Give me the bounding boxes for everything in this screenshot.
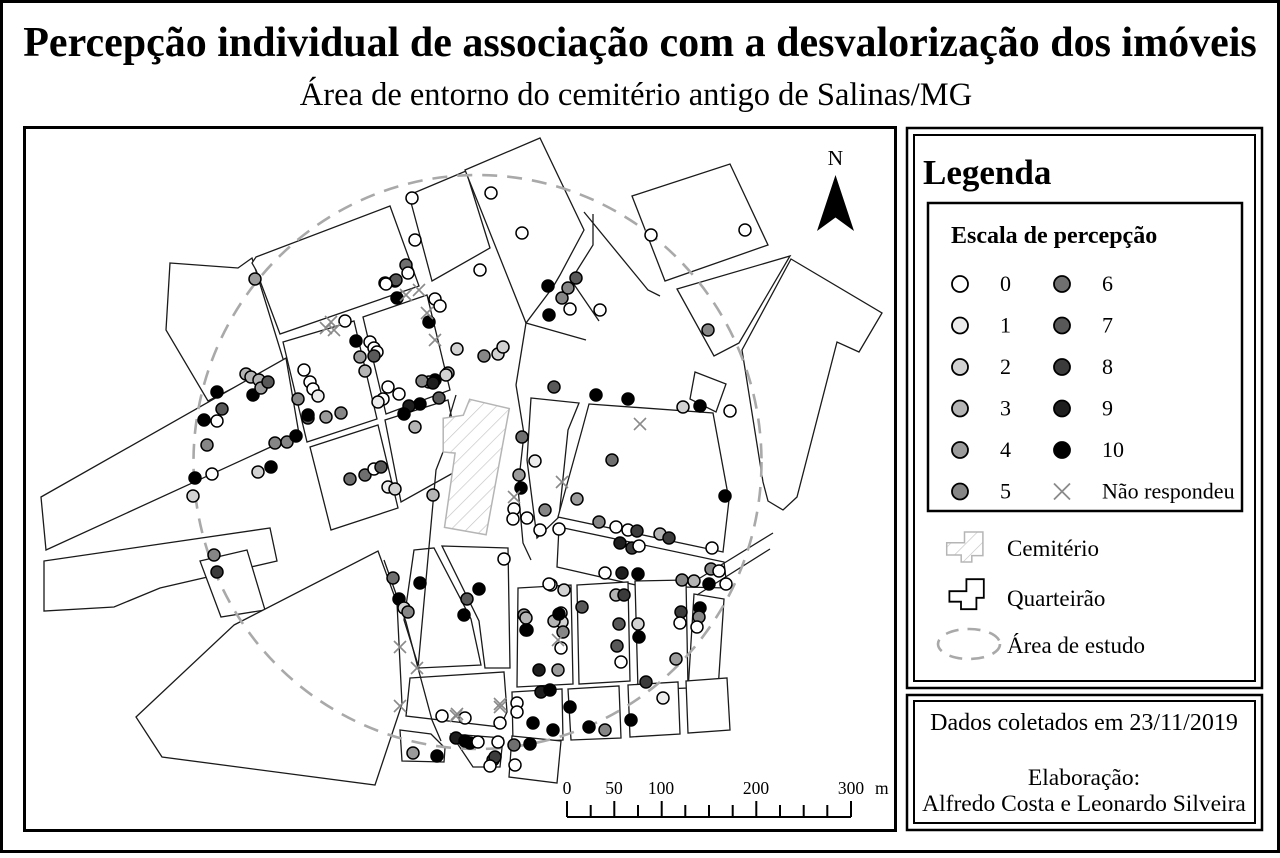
- svg-text:Não respondeu: Não respondeu: [1102, 479, 1235, 504]
- svg-text:Elaboração:: Elaboração:: [1028, 765, 1140, 791]
- svg-text:Área de entorno do cemitério a: Área de entorno do cemitério antigo de S…: [300, 77, 972, 113]
- svg-text:8: 8: [1102, 354, 1113, 379]
- svg-text:2: 2: [1000, 354, 1011, 379]
- svg-text:6: 6: [1102, 271, 1113, 296]
- svg-text:Percepção individual de associ: Percepção individual de associação com a…: [23, 20, 1256, 66]
- svg-text:4: 4: [1000, 437, 1011, 462]
- svg-text:3: 3: [1000, 396, 1011, 421]
- svg-text:300: 300: [838, 778, 865, 798]
- svg-text:Escala de percepção: Escala de percepção: [951, 223, 1157, 249]
- svg-text:9: 9: [1102, 396, 1113, 421]
- svg-text:Dados coletados em 23/11/2019: Dados coletados em 23/11/2019: [930, 710, 1238, 736]
- svg-text:Área de estudo: Área de estudo: [1007, 633, 1145, 658]
- svg-text:1: 1: [1000, 313, 1011, 338]
- svg-text:Legenda: Legenda: [923, 153, 1051, 192]
- svg-text:5: 5: [1000, 479, 1011, 504]
- svg-text:200: 200: [743, 778, 770, 798]
- svg-text:7: 7: [1102, 313, 1113, 338]
- svg-text:100: 100: [648, 778, 675, 798]
- svg-text:0: 0: [563, 778, 572, 798]
- svg-text:N: N: [828, 146, 844, 170]
- svg-text:10: 10: [1102, 437, 1124, 462]
- svg-text:50: 50: [605, 778, 623, 798]
- svg-text:Cemitério: Cemitério: [1007, 536, 1099, 561]
- svg-text:0: 0: [1000, 271, 1011, 296]
- svg-text:Alfredo Costa e Leonardo Silve: Alfredo Costa e Leonardo Silveira: [922, 791, 1246, 817]
- svg-text:m: m: [875, 778, 889, 798]
- svg-text:Quarteirão: Quarteirão: [1007, 586, 1105, 611]
